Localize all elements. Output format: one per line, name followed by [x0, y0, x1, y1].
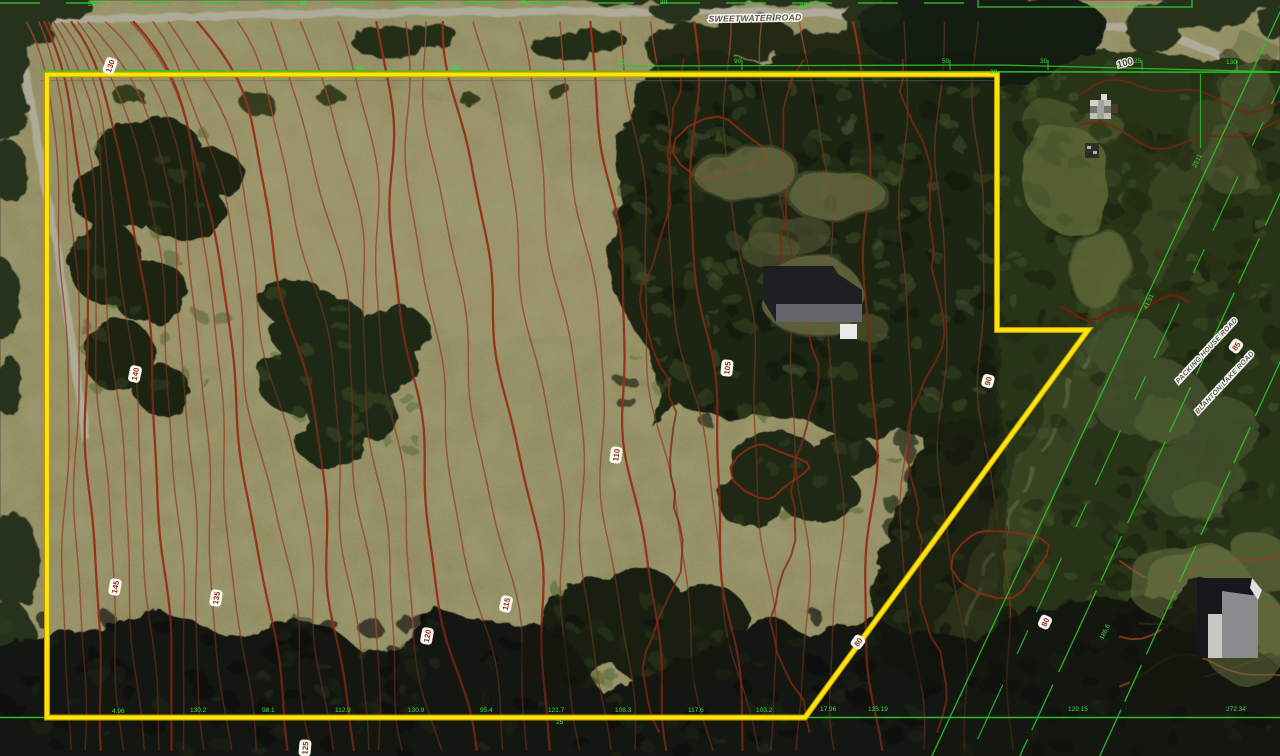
svg-text:35: 35	[800, 3, 808, 10]
svg-text:121.7: 121.7	[548, 707, 565, 714]
svg-text:108.3: 108.3	[615, 707, 632, 714]
svg-text:25: 25	[556, 719, 564, 726]
svg-text:125: 125	[300, 741, 310, 755]
svg-text:25: 25	[1134, 58, 1142, 65]
svg-text:95.4: 95.4	[480, 707, 493, 714]
svg-text:4.96: 4.96	[112, 708, 125, 715]
svg-text:117.6: 117.6	[688, 707, 704, 714]
svg-text:272.34: 272.34	[1226, 706, 1246, 713]
svg-text:30: 30	[1040, 58, 1048, 65]
svg-text:SWEETWATER ROAD: SWEETWATER ROAD	[708, 12, 801, 24]
svg-text:110: 110	[611, 448, 622, 462]
svg-text:25: 25	[618, 59, 626, 66]
svg-text:129.15: 129.15	[1068, 706, 1088, 713]
svg-text:50: 50	[942, 58, 950, 65]
svg-text:30: 30	[452, 65, 460, 72]
svg-text:105: 105	[722, 360, 732, 375]
svg-text:125.19: 125.19	[868, 706, 888, 713]
svg-text:30: 30	[660, 0, 668, 6]
svg-text:90: 90	[734, 58, 742, 65]
svg-text:30: 30	[990, 69, 998, 76]
svg-text:17.96: 17.96	[820, 706, 837, 713]
svg-text:130: 130	[1226, 59, 1237, 66]
svg-text:112.9: 112.9	[335, 707, 351, 714]
svg-text:130.2: 130.2	[190, 707, 207, 714]
svg-text:60: 60	[356, 65, 364, 72]
svg-text:103.2: 103.2	[756, 707, 773, 714]
svg-text:45: 45	[520, 0, 528, 6]
svg-text:130.9: 130.9	[408, 707, 425, 714]
svg-text:98.1: 98.1	[262, 707, 275, 714]
svg-text:60: 60	[300, 0, 308, 7]
svg-text:55: 55	[88, 1, 96, 8]
